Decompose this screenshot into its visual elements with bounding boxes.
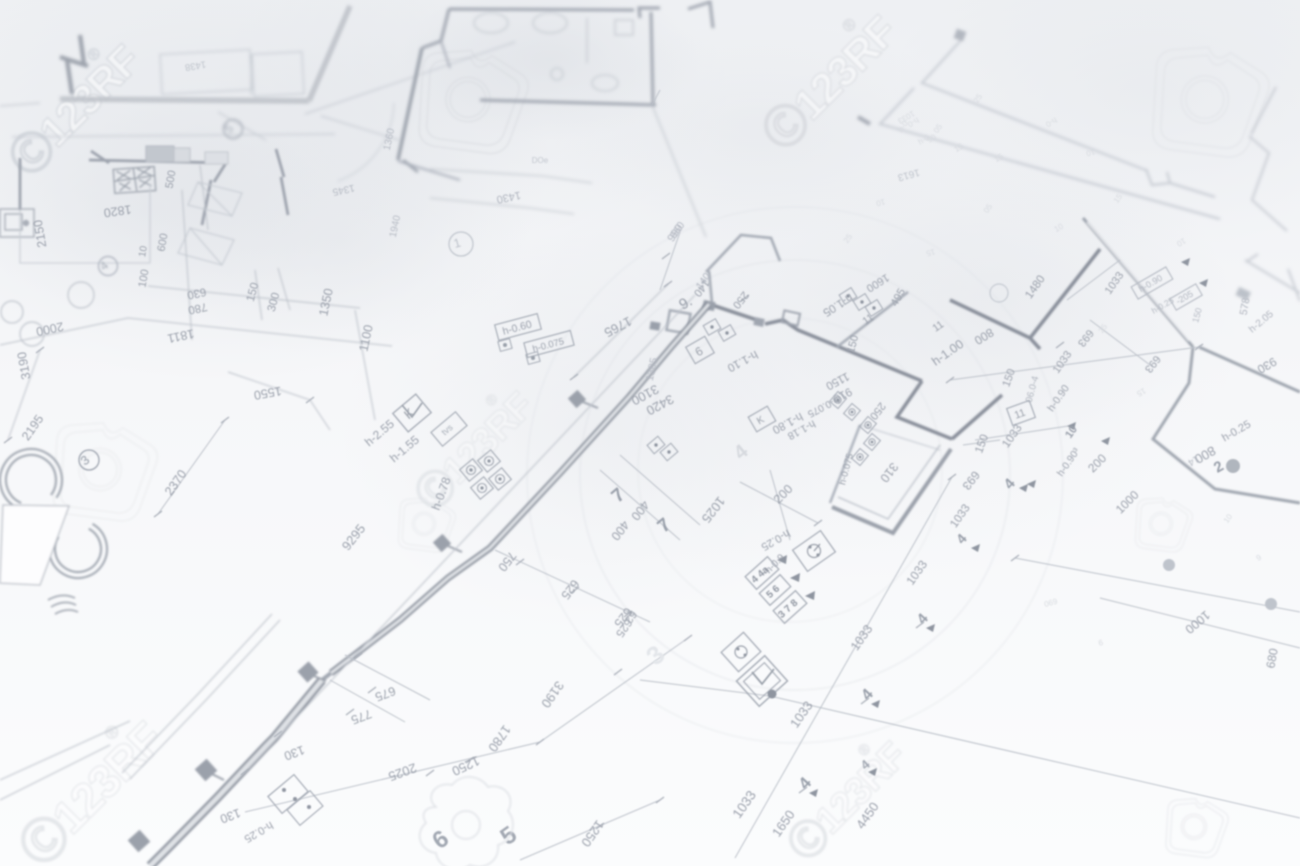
svg-text:DOe: DOe xyxy=(532,156,549,165)
